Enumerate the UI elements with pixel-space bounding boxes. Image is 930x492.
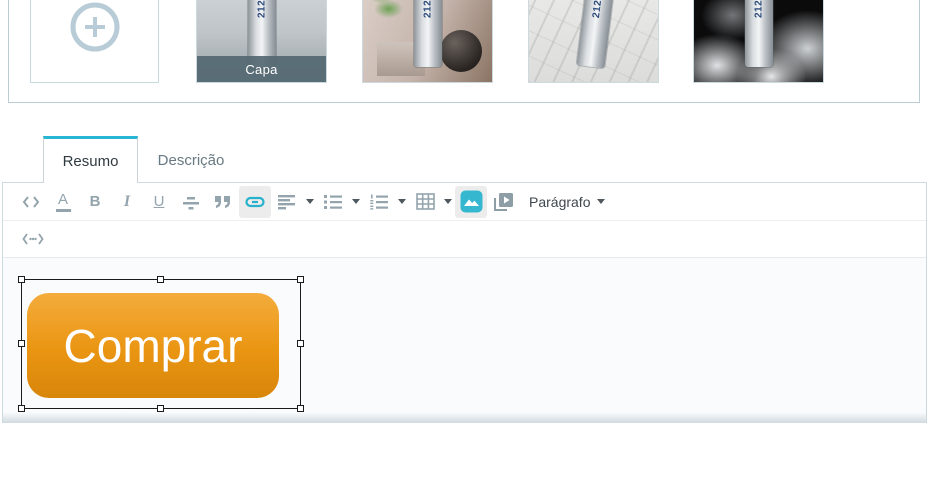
unordered-list-icon — [324, 194, 342, 210]
quote-icon — [214, 195, 232, 209]
editor-content[interactable]: Comprar — [3, 258, 926, 423]
paragraph-format-dropdown[interactable]: Parágrafo — [529, 194, 605, 210]
unordered-list-button[interactable] — [317, 186, 349, 218]
insert-video-button[interactable] — [487, 186, 519, 218]
horizontal-rule-button[interactable] — [175, 186, 207, 218]
chevron-down-icon — [306, 199, 314, 204]
bottle-label: 212 VIP — [256, 0, 267, 18]
code-view-button[interactable] — [15, 186, 47, 218]
bold-button[interactable]: B — [79, 186, 111, 218]
selection-handle-sw[interactable] — [18, 405, 25, 412]
image-icon — [460, 190, 483, 213]
link-button[interactable] — [239, 186, 271, 218]
insert-image-button[interactable] — [455, 186, 487, 218]
product-thumbnail[interactable]: 212 VIP — [528, 0, 659, 83]
ordered-list-button[interactable] — [363, 186, 395, 218]
align-button[interactable] — [271, 186, 303, 218]
italic-button[interactable]: I — [111, 186, 143, 218]
horizontal-rule-icon — [182, 193, 200, 211]
selection-handle-s[interactable] — [157, 405, 164, 412]
paragraph-format-label: Parágrafo — [529, 194, 590, 210]
align-left-icon — [278, 194, 296, 210]
chevron-down-icon — [398, 199, 406, 204]
chevron-down-icon — [352, 199, 360, 204]
perfume-bottle: 212 VIP — [576, 0, 616, 68]
tab-descricao[interactable]: Descrição — [139, 138, 243, 182]
plant-decoration — [367, 0, 415, 25]
ordered-list-icon — [370, 194, 388, 210]
quote-button[interactable] — [207, 186, 239, 218]
chevron-down-icon — [597, 199, 605, 204]
align-dropdown-caret[interactable] — [303, 186, 317, 218]
selection-handle-e[interactable] — [297, 340, 304, 347]
video-icon — [493, 192, 514, 212]
buy-button-image[interactable]: Comprar — [27, 293, 279, 398]
add-circle-plus-icon — [69, 1, 121, 53]
perfume-bottle: 212 VIP — [745, 0, 773, 67]
selection-handle-se[interactable] — [297, 405, 304, 412]
thumbnail-photo: 212 VIP — [694, 0, 823, 82]
text-color-button[interactable]: A — [47, 186, 79, 218]
selection-handle-nw[interactable] — [18, 276, 25, 283]
unordered-list-dropdown-caret[interactable] — [349, 186, 363, 218]
selection-handle-n[interactable] — [157, 276, 164, 283]
perfume-bottle: 212 VIP — [414, 0, 442, 67]
image-selection-box[interactable]: Comprar — [21, 279, 301, 409]
product-thumbnail-cover[interactable]: 212 VIP Capa — [196, 0, 327, 83]
bottle-label: 212 VIP — [753, 0, 764, 18]
italic-icon: I — [124, 194, 130, 210]
cover-badge: Capa — [197, 56, 326, 82]
selection-handle-w[interactable] — [18, 340, 25, 347]
table-dropdown-caret[interactable] — [441, 186, 455, 218]
editor-toolbar: A B I U — [3, 183, 926, 221]
tab-resumo[interactable]: Resumo — [43, 136, 138, 183]
text-color-icon: A — [56, 192, 71, 212]
selection-handle-ne[interactable] — [297, 276, 304, 283]
add-image-tile[interactable] — [30, 0, 159, 83]
product-thumbnail[interactable]: 212 VIP — [693, 0, 824, 83]
ordered-list-dropdown-caret[interactable] — [395, 186, 409, 218]
action-bar: Prever Online — [0, 430, 930, 492]
underline-button[interactable]: U — [143, 186, 175, 218]
rich-text-editor: A B I U — [2, 182, 927, 423]
code-icon — [22, 195, 40, 209]
product-thumbnail[interactable]: 212 VIP — [362, 0, 493, 83]
bold-icon: B — [90, 194, 101, 209]
editor-toolbar-secondary — [3, 221, 926, 258]
sphere-decoration — [440, 30, 482, 72]
more-code-button[interactable] — [17, 223, 49, 255]
bottle-label: 212 VIP — [422, 0, 433, 18]
buy-button-text: Comprar — [64, 319, 243, 373]
chevron-down-icon — [444, 199, 452, 204]
table-icon — [416, 193, 435, 210]
underline-icon: U — [154, 194, 165, 209]
page: 212 VIP Capa 212 VIP 212 VIP 212 VIP — [0, 0, 930, 492]
code-ellipsis-icon — [22, 232, 44, 246]
thumbnail-photo: 212 VIP — [363, 0, 492, 82]
table-button[interactable] — [409, 186, 441, 218]
bottle-label: 212 VIP — [590, 0, 606, 19]
thumbnail-photo: 212 VIP — [529, 0, 658, 82]
link-icon — [245, 193, 265, 211]
